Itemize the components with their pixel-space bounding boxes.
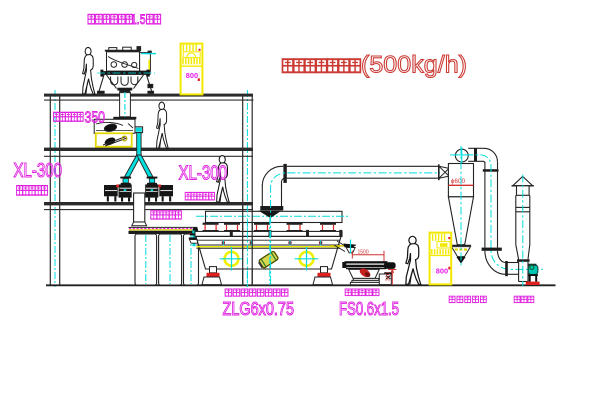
svg-text:800: 800 bbox=[436, 267, 448, 276]
svg-text:XL-300: XL-300 bbox=[179, 163, 228, 185]
svg-text:(500kg/h): (500kg/h) bbox=[361, 52, 467, 79]
svg-text:800: 800 bbox=[186, 71, 198, 80]
svg-text:1.5: 1.5 bbox=[131, 12, 146, 27]
svg-text:ϕ600: ϕ600 bbox=[451, 178, 466, 185]
svg-text:350: 350 bbox=[85, 110, 106, 127]
svg-text:XL-300: XL-300 bbox=[14, 160, 63, 182]
svg-text:1500: 1500 bbox=[358, 249, 369, 255]
svg-text:ZLG6x0.75: ZLG6x0.75 bbox=[223, 299, 295, 319]
svg-text:340: 340 bbox=[386, 272, 392, 281]
svg-text:FS0.6x1.5: FS0.6x1.5 bbox=[339, 299, 399, 319]
